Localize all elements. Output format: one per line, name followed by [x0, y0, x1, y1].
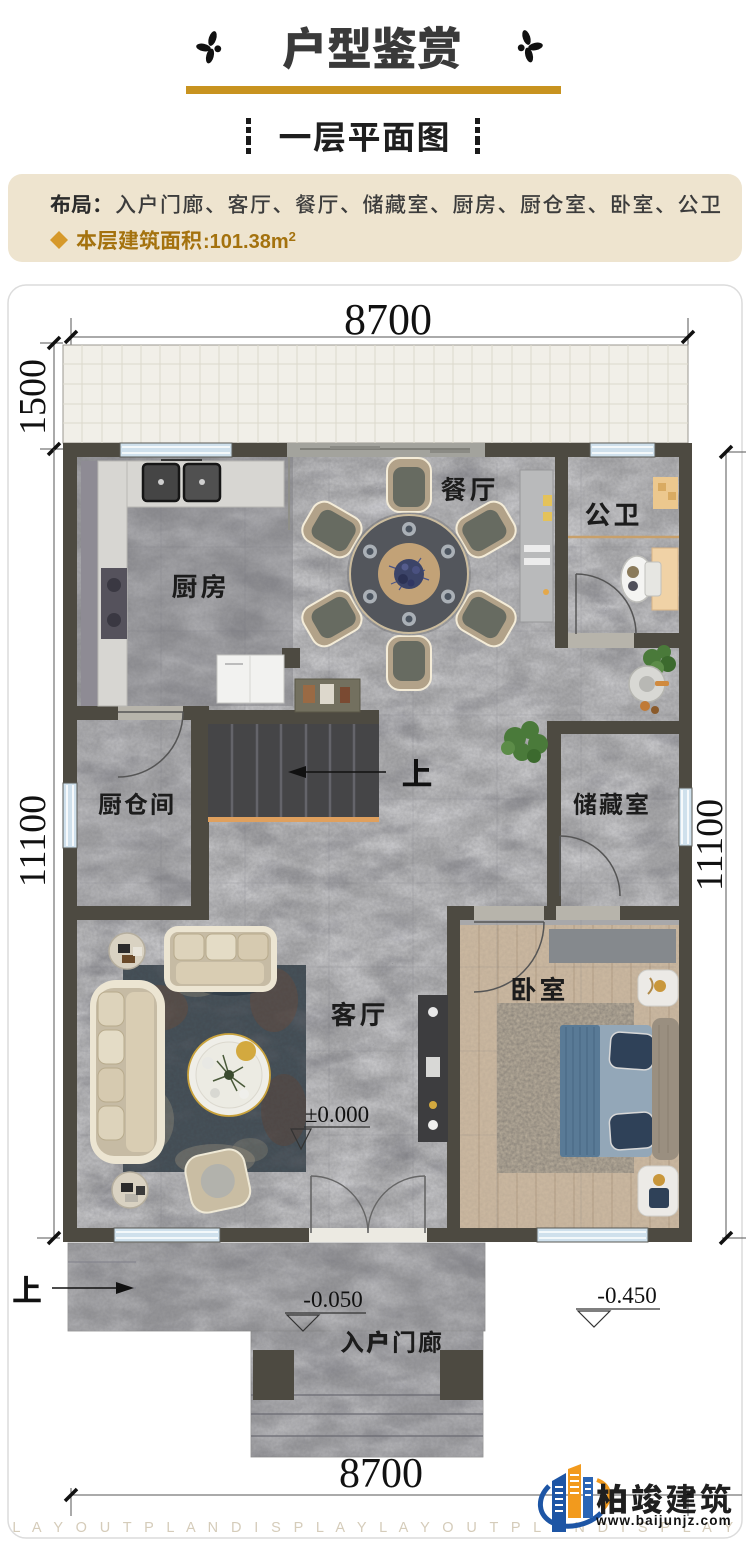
- svg-text:8700: 8700: [339, 1451, 423, 1497]
- svg-text:11100: 11100: [689, 799, 731, 891]
- svg-text:-0.050: -0.050: [303, 1287, 362, 1312]
- svg-text:-0.450: -0.450: [597, 1283, 656, 1308]
- svg-text:www.baijunjz.com: www.baijunjz.com: [595, 1513, 732, 1528]
- svg-text::101.38m2: :101.38m2: [203, 229, 296, 253]
- svg-text:11100: 11100: [12, 795, 54, 887]
- svg-text:±0.000: ±0.000: [305, 1102, 369, 1127]
- svg-text:1500: 1500: [12, 359, 54, 435]
